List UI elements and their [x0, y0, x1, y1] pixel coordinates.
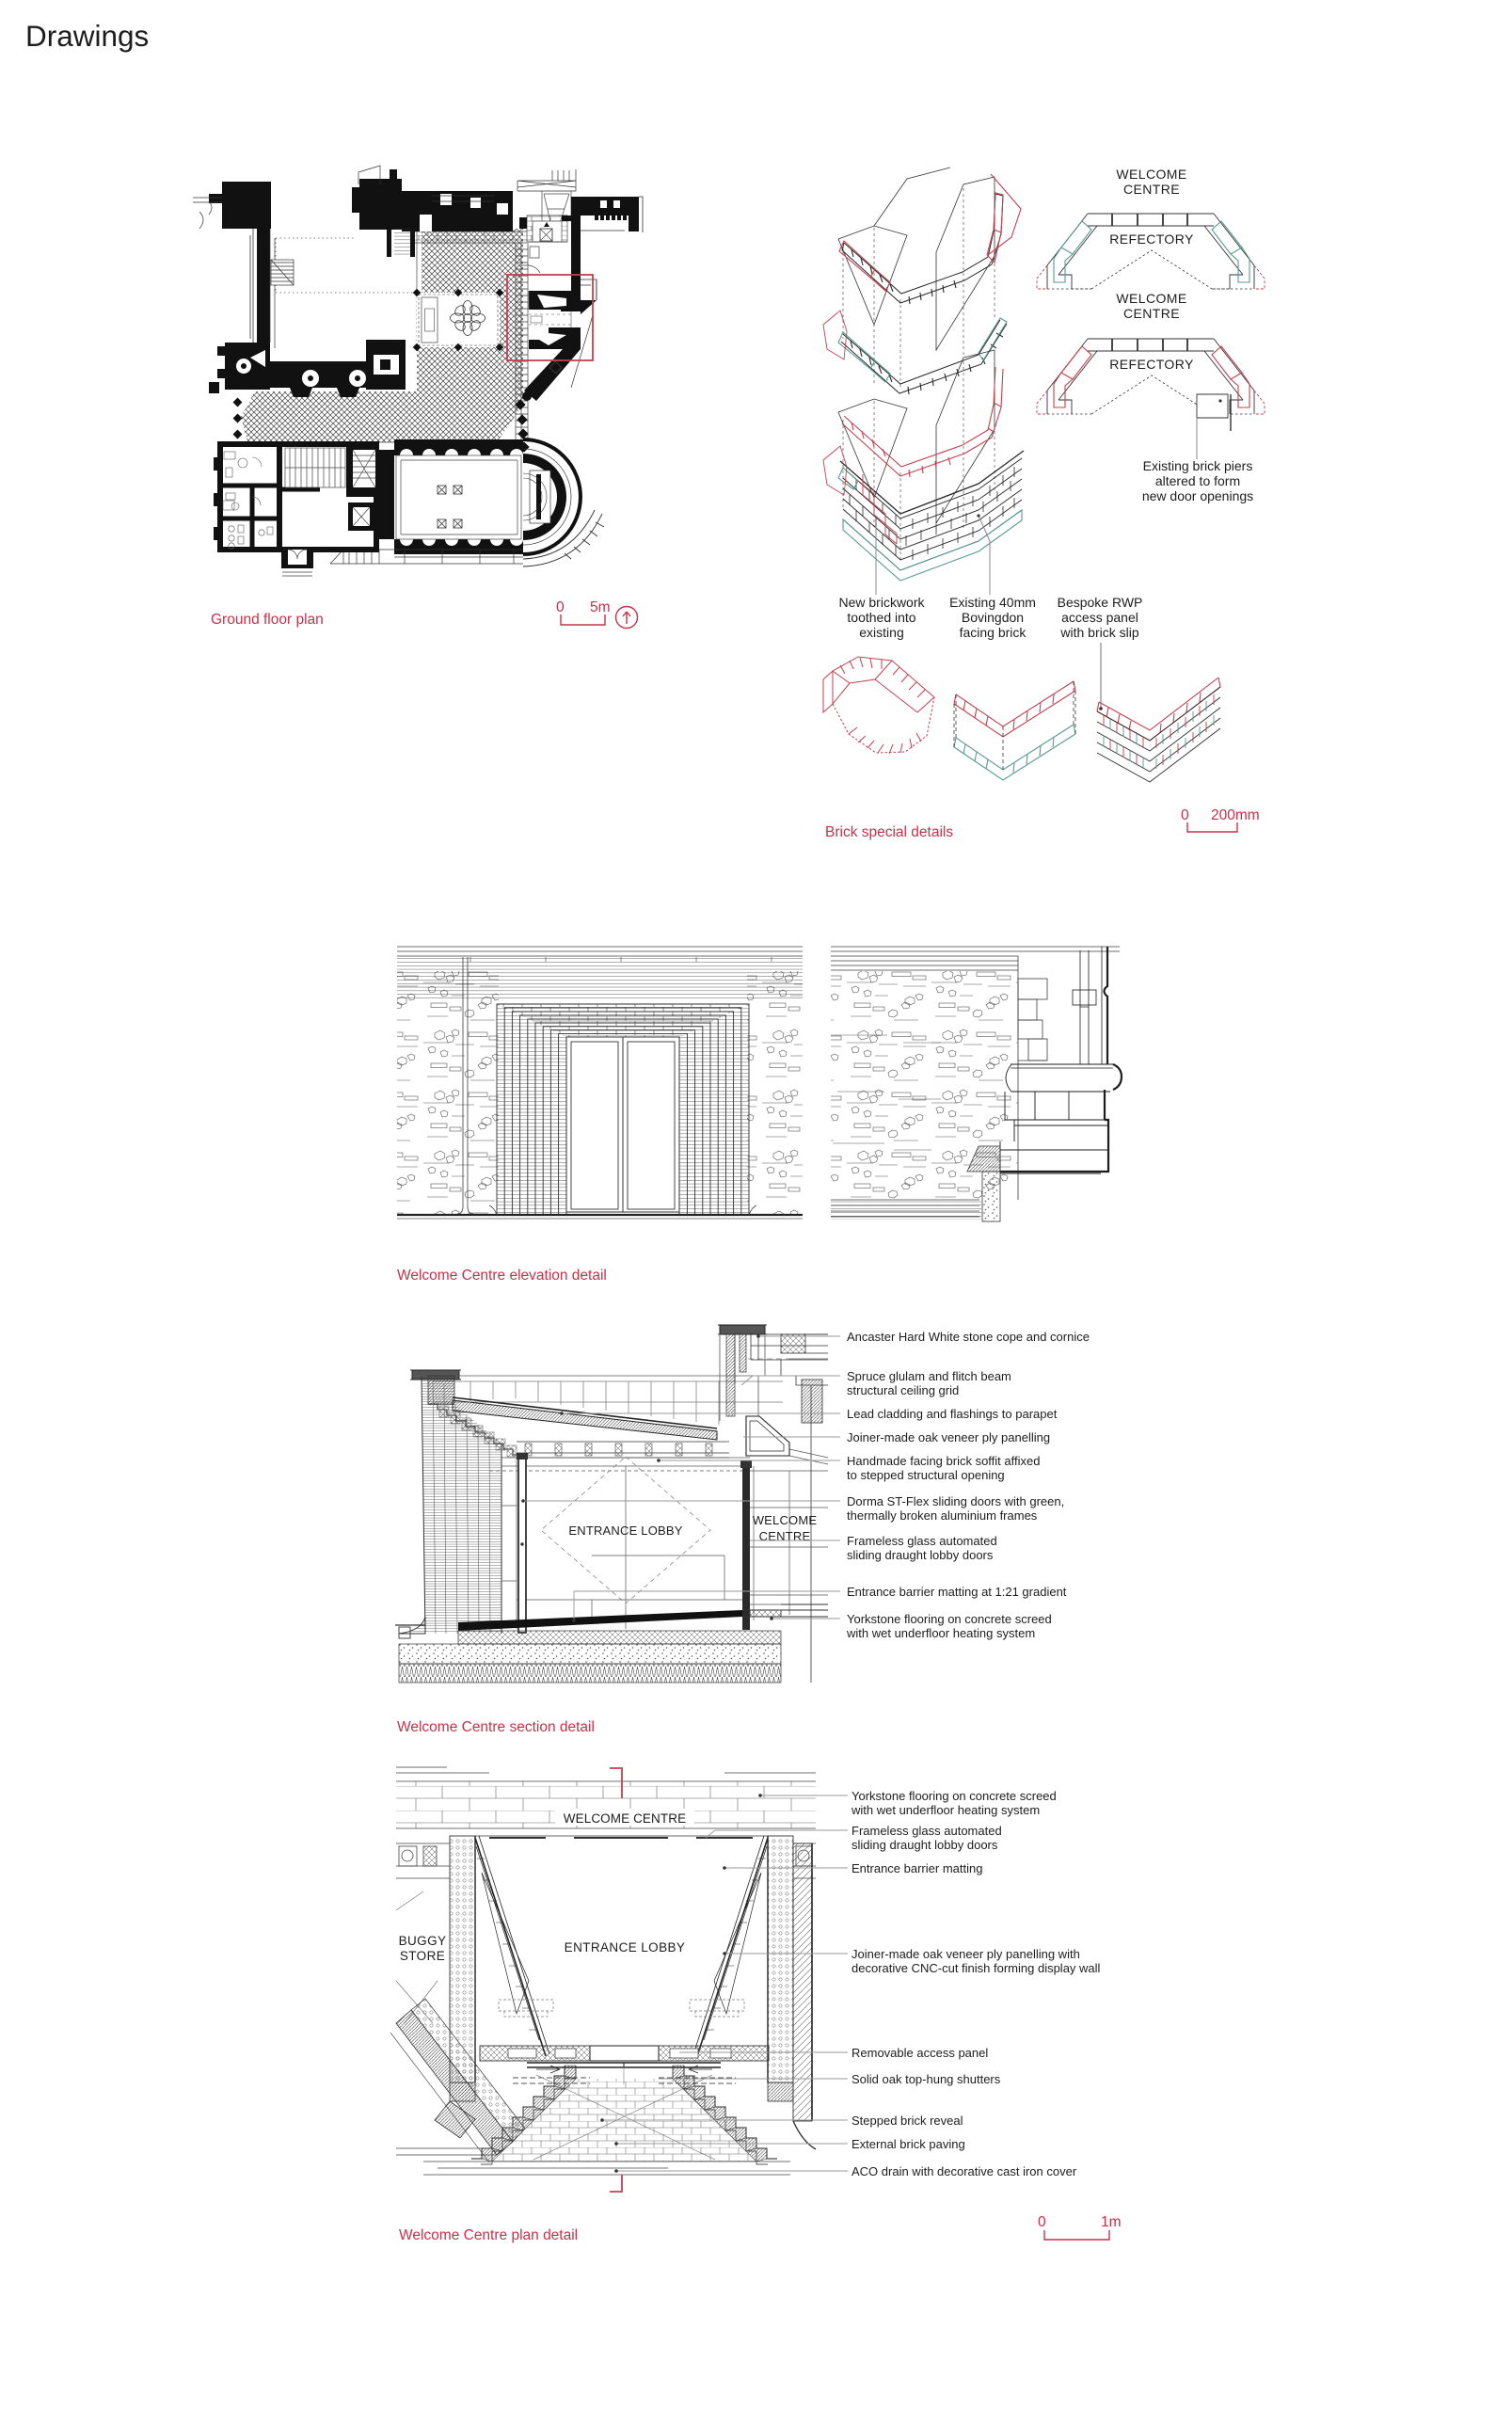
svg-text:WELCOME: WELCOME: [753, 1513, 818, 1527]
svg-text:with wet underfloor heating sy: with wet underfloor heating system: [851, 1803, 1040, 1817]
svg-text:Frameless glass automated: Frameless glass automated: [851, 1824, 1002, 1838]
svg-text:thermally broken aluminium fra: thermally broken aluminium frames: [847, 1508, 1038, 1523]
svg-text:CENTRE: CENTRE: [759, 1529, 811, 1543]
svg-text:BUGGY: BUGGY: [399, 1934, 447, 1948]
svg-text:structural ceiling grid: structural ceiling grid: [847, 1383, 959, 1397]
svg-text:Handmade facing brick soffit a: Handmade facing brick soffit affixed: [847, 1454, 1040, 1468]
svg-text:Ancaster Hard White stone cope: Ancaster Hard White stone cope and corni…: [847, 1330, 1090, 1344]
svg-text:1m: 1m: [1101, 2214, 1122, 2230]
svg-text:Existing 40mm: Existing 40mm: [949, 595, 1036, 610]
svg-text:sliding draught lobby doors: sliding draught lobby doors: [851, 1838, 998, 1852]
svg-text:facing brick: facing brick: [960, 625, 1027, 640]
svg-text:5m: 5m: [590, 599, 611, 615]
svg-text:REFECTORY: REFECTORY: [1109, 357, 1194, 372]
svg-text:Bovingdon: Bovingdon: [962, 610, 1024, 625]
svg-text:Dorma ST-Flex sliding doors wi: Dorma ST-Flex sliding doors with green,: [847, 1494, 1064, 1508]
svg-text:REFECTORY: REFECTORY: [1109, 231, 1194, 247]
svg-text:Solid oak top-hung shutters: Solid oak top-hung shutters: [851, 2072, 1001, 2086]
svg-text:Ground floor plan: Ground floor plan: [211, 612, 324, 628]
svg-text:Frameless glass automated: Frameless glass automated: [847, 1534, 997, 1548]
svg-text:sliding draught lobby doors: sliding draught lobby doors: [847, 1548, 994, 1562]
svg-text:ENTRANCE LOBBY: ENTRANCE LOBBY: [568, 1524, 682, 1538]
svg-text:0: 0: [1181, 807, 1189, 823]
svg-text:Drawings: Drawings: [25, 19, 149, 53]
svg-text:Brick special details: Brick special details: [825, 824, 953, 840]
svg-text:with wet underfloor heating sy: with wet underfloor heating system: [846, 1626, 1035, 1640]
svg-text:Stepped brick reveal: Stepped brick reveal: [851, 2114, 963, 2128]
svg-text:Spruce glulam and flitch beam: Spruce glulam and flitch beam: [847, 1369, 1011, 1383]
svg-text:altered to form: altered to form: [1155, 473, 1240, 488]
svg-text:0: 0: [556, 599, 565, 615]
svg-text:ACO drain with decorative cast: ACO drain with decorative cast iron cove…: [851, 2164, 1077, 2178]
svg-text:ENTRANCE LOBBY: ENTRANCE LOBBY: [565, 1940, 686, 1954]
svg-text:CENTRE: CENTRE: [1123, 182, 1180, 197]
svg-text:Entrance barrier matting: Entrance barrier matting: [851, 1861, 982, 1875]
svg-text:Removable access panel: Removable access panel: [851, 2046, 988, 2060]
svg-text:200mm: 200mm: [1211, 807, 1260, 823]
svg-text:with brick slip: with brick slip: [1059, 625, 1138, 640]
svg-text:access panel: access panel: [1061, 610, 1138, 625]
svg-text:Existing brick piers: Existing brick piers: [1143, 458, 1253, 473]
svg-text:Yorkstone flooring on concrete: Yorkstone flooring on concrete screed: [851, 1789, 1057, 1803]
svg-text:New brickwork: New brickwork: [838, 595, 925, 610]
svg-text:External brick paving: External brick paving: [851, 2137, 965, 2151]
svg-text:Welcome Centre elevation detai: Welcome Centre elevation detail: [397, 1268, 607, 1284]
svg-text:decorative CNC-cut finish form: decorative CNC-cut finish forming displa…: [851, 1961, 1101, 1975]
svg-text:CENTRE: CENTRE: [1123, 306, 1180, 321]
svg-text:0: 0: [1038, 2214, 1046, 2230]
svg-text:Lead cladding and flashings to: Lead cladding and flashings to parapet: [847, 1407, 1058, 1421]
svg-text:Welcome Centre section detail: Welcome Centre section detail: [397, 1719, 595, 1735]
svg-text:toothed into: toothed into: [847, 610, 915, 625]
svg-text:Joiner-made oak veneer ply pan: Joiner-made oak veneer ply panelling wit…: [851, 1947, 1080, 1961]
svg-text:Welcome Centre plan detail: Welcome Centre plan detail: [399, 2227, 578, 2243]
svg-text:WELCOME: WELCOME: [1116, 291, 1186, 306]
svg-text:WELCOME CENTRE: WELCOME CENTRE: [564, 1811, 686, 1826]
svg-text:Joiner-made oak veneer ply pan: Joiner-made oak veneer ply panelling: [847, 1430, 1050, 1444]
svg-text:WELCOME: WELCOME: [1116, 167, 1186, 182]
svg-text:existing: existing: [859, 625, 903, 640]
svg-text:to stepped structural opening: to stepped structural opening: [847, 1468, 1005, 1482]
svg-text:Yorkstone flooring on concrete: Yorkstone flooring on concrete screed: [847, 1612, 1052, 1626]
svg-text:Bespoke RWP: Bespoke RWP: [1058, 595, 1143, 610]
svg-text:new door openings: new door openings: [1142, 488, 1253, 503]
svg-text:STORE: STORE: [400, 1949, 445, 1963]
svg-text:Entrance barrier matting at 1:: Entrance barrier matting at 1:21 gradien…: [847, 1585, 1067, 1599]
